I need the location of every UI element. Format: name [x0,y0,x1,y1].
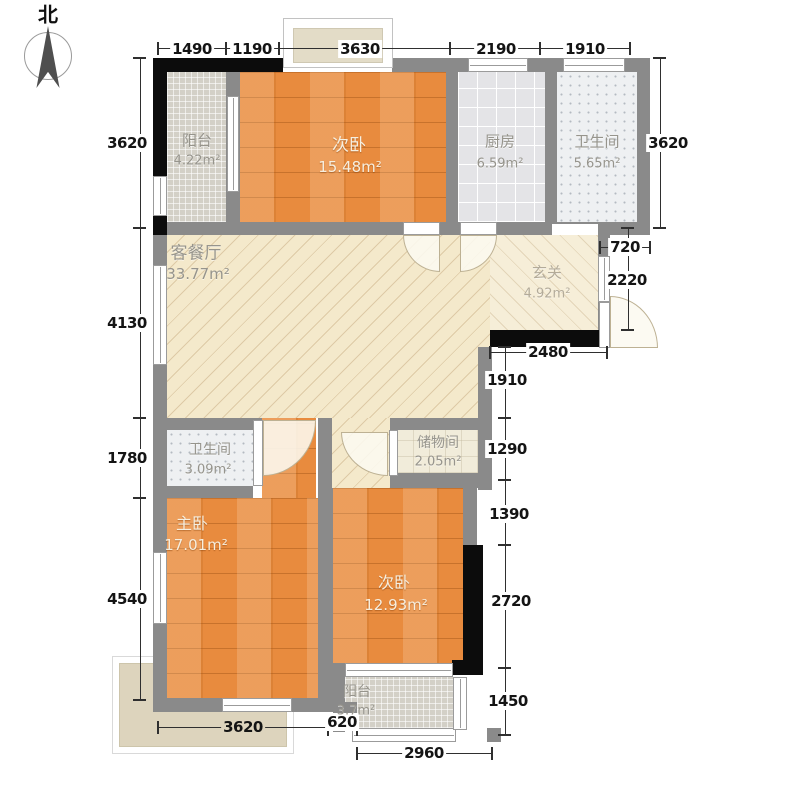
room-area-bedroom-bottom: 12.93m² [364,596,428,614]
dim-tick [133,57,146,59]
dim-label-top-3630: 3630 [338,40,382,58]
dim-label-left-4130: 4130 [105,314,149,332]
room-name-living-dining: 客餐厅 [171,239,222,264]
wall [333,663,345,677]
door-leaf [389,430,398,476]
wall-black [463,545,483,675]
dim-label-top-1490: 1490 [170,40,214,58]
wall [446,72,458,222]
room-name-master-bedroom: 主卧 [176,510,208,534]
window [153,552,167,624]
door-leaf [403,222,440,235]
dim-label-1910: 1910 [485,371,529,389]
dim-tick [133,227,146,229]
room-name-kitchen: 厨房 [485,131,515,152]
wall-black [452,660,483,675]
dim-line [158,48,630,49]
dim-tick [157,42,159,55]
room-name-bathroom-bottom: 卫生间 [189,439,231,459]
room-area-master-bedroom: 17.01m² [164,536,228,554]
room-name-bedroom-bottom: 次卧 [378,569,410,593]
dim-label-top-1190: 1190 [230,40,274,58]
dim-tick [599,241,601,254]
dim-tick [621,329,634,331]
dim-tick [621,227,634,229]
dim-tick [449,42,451,55]
wall [390,418,490,430]
dim-tick [133,497,146,499]
room-name-foyer: 玄关 [532,262,562,283]
dim-label-1290: 1290 [485,440,529,458]
wall [545,72,557,222]
window [153,176,167,216]
wall-black [153,58,283,72]
window [563,58,625,72]
dim-label-left-4540: 4540 [105,590,149,608]
wall [167,486,253,498]
wall [463,488,477,545]
dim-tick [653,57,666,59]
dim-label-right-720: 720 [608,238,642,256]
dim-tick [489,346,491,359]
window [222,698,292,712]
dim-label-left-1780: 1780 [105,449,149,467]
wall-black [153,216,167,235]
room-name-balcony-top: 阳台 [182,130,212,151]
floor-plan: 1490 1190 3630 2190 1910 3620 4130 1780 … [0,0,800,800]
dim-line [505,347,506,735]
dim-label-right-2220: 2220 [605,271,649,289]
dim-tick [491,747,493,760]
room-area-storage: 2.05m² [415,455,462,470]
room-area-bedroom-top: 15.48m² [318,158,382,176]
room-area-foyer: 4.92m² [524,287,571,302]
window [453,677,467,730]
dim-label-top-1910: 1910 [563,40,607,58]
dim-tick [133,417,146,419]
dim-label-1450: 1450 [486,692,530,710]
window [468,58,528,72]
wall [318,418,332,490]
dim-tick [498,417,511,419]
door-leaf [460,222,497,235]
dim-tick [498,346,511,348]
dim-tick [539,42,541,55]
dim-label-left-3620: 3620 [105,134,149,152]
dim-tick [653,227,666,229]
entry-door-swing-arc [610,296,658,348]
dim-label-2720: 2720 [489,592,533,610]
dim-label-top-2190: 2190 [474,40,518,58]
window [352,728,456,742]
wall [318,488,333,700]
room-area-bathroom-bottom: 3.09m² [185,463,232,478]
dim-label-1390: 1390 [487,505,531,523]
wall-black [153,58,167,176]
room-area-living-dining: 33.77m² [166,265,230,283]
room-name-balcony-bottom: 阳台 [343,681,371,701]
window [345,663,453,677]
dim-label-right-3620: 3620 [646,134,690,152]
room-name-bedroom-top: 次卧 [332,131,366,156]
balcony-sliding-door [227,96,239,192]
room-area-kitchen: 6.59m² [477,157,524,172]
dim-label-bottom-2960: 2960 [402,744,446,762]
room-name-bathroom-top: 卫生间 [574,131,619,152]
dim-tick [133,699,146,701]
room-name-storage: 储物间 [417,432,459,452]
door-leaf [253,420,263,486]
wall [167,418,262,430]
dim-tick [606,346,608,359]
dim-tick [498,479,511,481]
dim-label-2480: 2480 [526,343,570,361]
dim-tick [629,42,631,55]
wall [390,473,492,488]
room-area-balcony-top: 4.22m² [174,154,221,169]
floor-foyer [490,235,600,330]
dim-tick [498,734,511,736]
room-area-bathroom-top: 5.65m² [574,157,621,172]
dim-tick [649,241,651,254]
north-label: 北 [38,0,58,28]
room-area-balcony-bottom: 3.7m² [337,704,376,719]
dim-tick [225,42,227,55]
dim-label-bottom-3620: 3620 [221,718,265,736]
dim-tick [356,747,358,760]
door-opening [552,224,598,235]
entry-door-leaf [599,302,610,348]
dim-tick [157,721,159,734]
dim-tick [278,42,280,55]
dim-tick [498,544,511,546]
window [153,265,167,365]
dim-tick [498,667,511,669]
